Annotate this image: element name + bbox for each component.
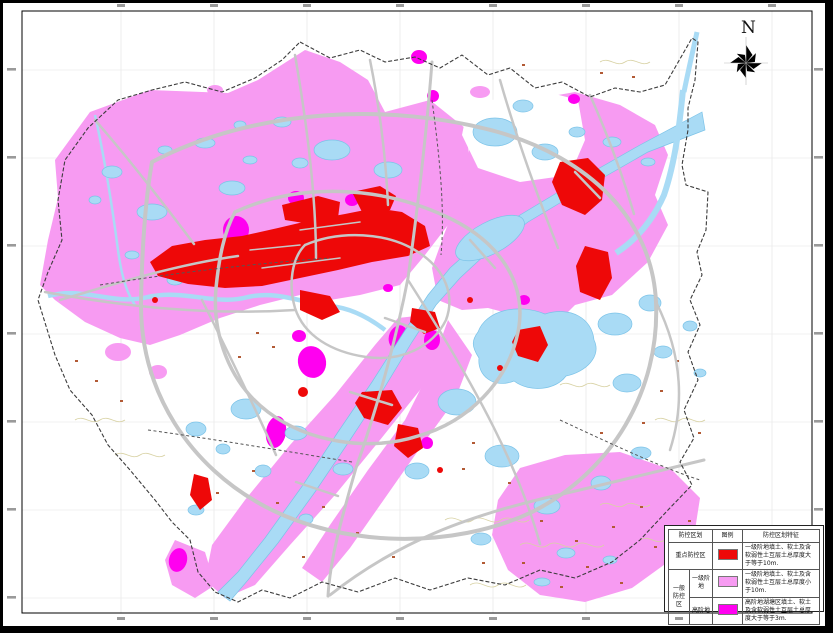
legend-swatch-pink: [713, 570, 743, 597]
north-arrow: N: [724, 18, 768, 85]
legend-swatch-red: [713, 543, 743, 570]
map-sheet: N 防控区划 图例 防控区划特征 重点防控区: [0, 0, 833, 633]
magenta-swatch-icon: [718, 604, 738, 615]
legend-header-symbol: 图例: [713, 530, 743, 543]
legend-terrace-first: 一级阶地: [690, 570, 713, 597]
legend-desc-first-terrace: 一级阶地填土、软土及含软弱性土互层土总厚度小于10m.: [743, 570, 820, 597]
red-swatch-icon: [718, 549, 738, 560]
legend-desc-key: 一级阶地填土、软土及含软弱性土互层土总厚度大于等于10m.: [743, 543, 820, 570]
legend-table: 防控区划 图例 防控区划特征 重点防控区 一级阶地填土、软土及含软弱性土互层土总…: [668, 529, 820, 625]
legend-panel: 防控区划 图例 防控区划特征 重点防控区 一级阶地填土、软土及含软弱性土互层土总…: [664, 525, 824, 612]
legend-header-feature: 防控区划特征: [743, 530, 820, 543]
legend-swatch-magenta: [713, 597, 743, 624]
pink-swatch-icon: [718, 576, 738, 587]
legend-zone-general: 一般防控区: [669, 570, 690, 625]
legend-header-zoning: 防控区划: [669, 530, 713, 543]
north-label: N: [741, 18, 756, 38]
legend-desc-high-terrace: 高阶地湖塘区填土、软土及含软弱性土互层土总厚度大于等于3m.: [743, 597, 820, 624]
legend-zone-key: 重点防控区: [669, 543, 713, 570]
legend-terrace-high: 高阶地: [690, 597, 713, 624]
compass-star-icon: [724, 37, 768, 85]
